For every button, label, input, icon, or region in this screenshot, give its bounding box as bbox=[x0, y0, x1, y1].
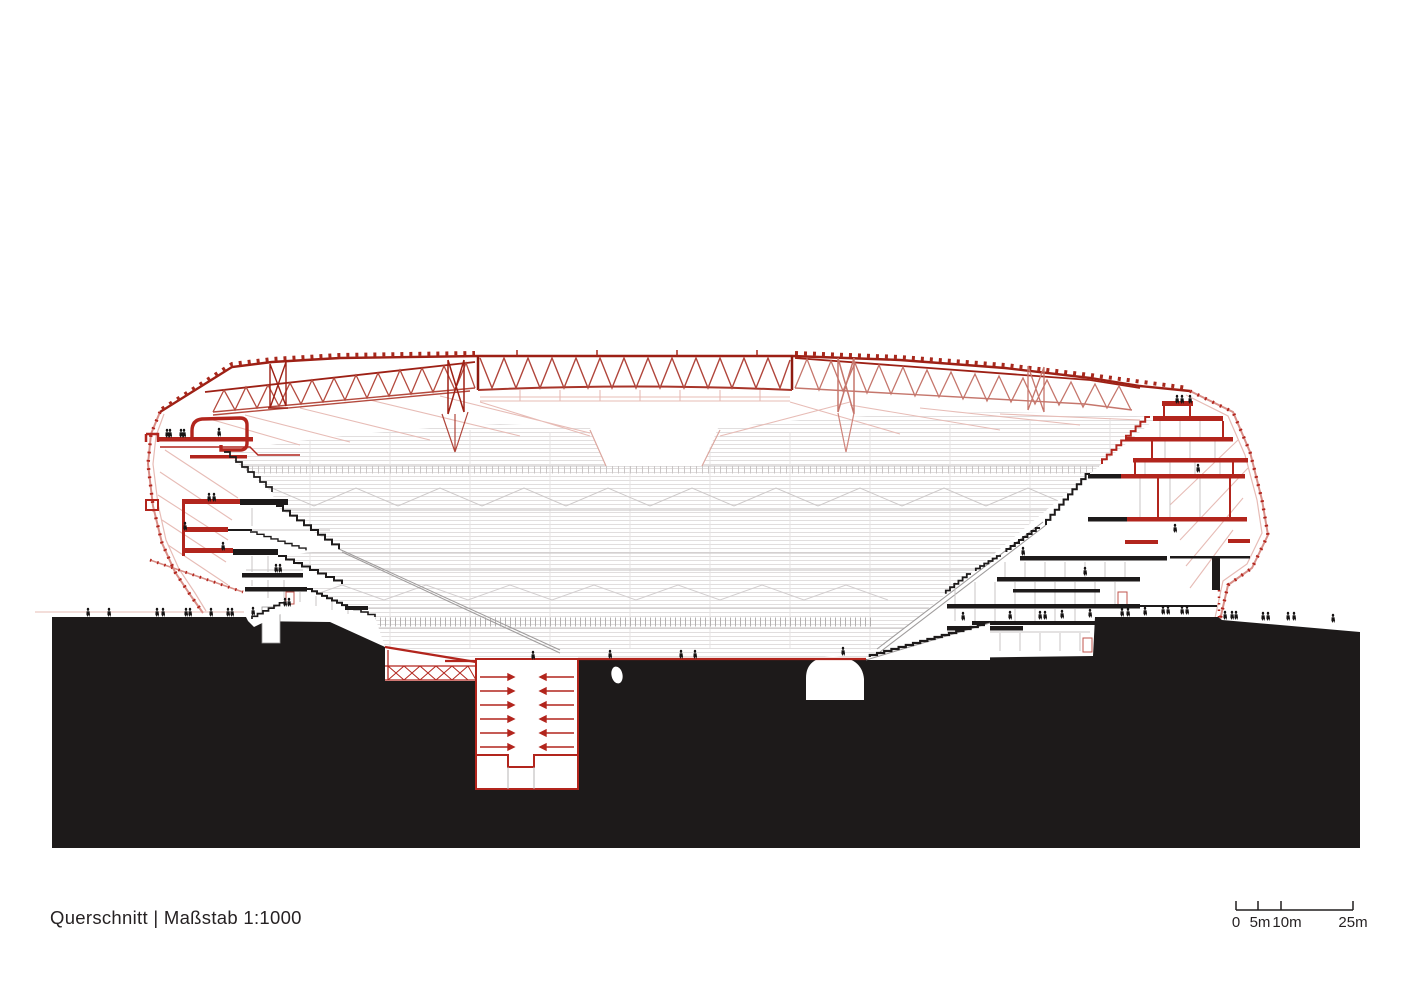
roof-opening-edges bbox=[590, 430, 720, 466]
scale-label-10m: 10m bbox=[1272, 914, 1301, 931]
scale-label-0: 0 bbox=[1232, 914, 1240, 931]
scale-label-25m: 25m bbox=[1338, 914, 1367, 931]
scale-label-5m: 5m bbox=[1250, 914, 1271, 931]
drawing-sheet: Querschnitt | Maßstab 1:1000 0 5m 10m 25… bbox=[0, 0, 1415, 1000]
caption: Querschnitt | Maßstab 1:1000 bbox=[50, 907, 302, 928]
right-door-frame bbox=[1083, 638, 1092, 652]
scale-bar bbox=[1236, 901, 1353, 910]
service-tunnel bbox=[806, 656, 864, 700]
right-facade bbox=[1186, 391, 1268, 620]
scale-bar-labels: 0 5m 10m 25m bbox=[1232, 914, 1368, 931]
left-facade bbox=[146, 412, 243, 613]
underground-stair-shaft bbox=[476, 659, 578, 789]
stadium-cross-section-drawing: Querschnitt | Maßstab 1:1000 0 5m 10m 25… bbox=[0, 0, 1415, 1000]
right-door-frame-2 bbox=[1118, 592, 1127, 606]
